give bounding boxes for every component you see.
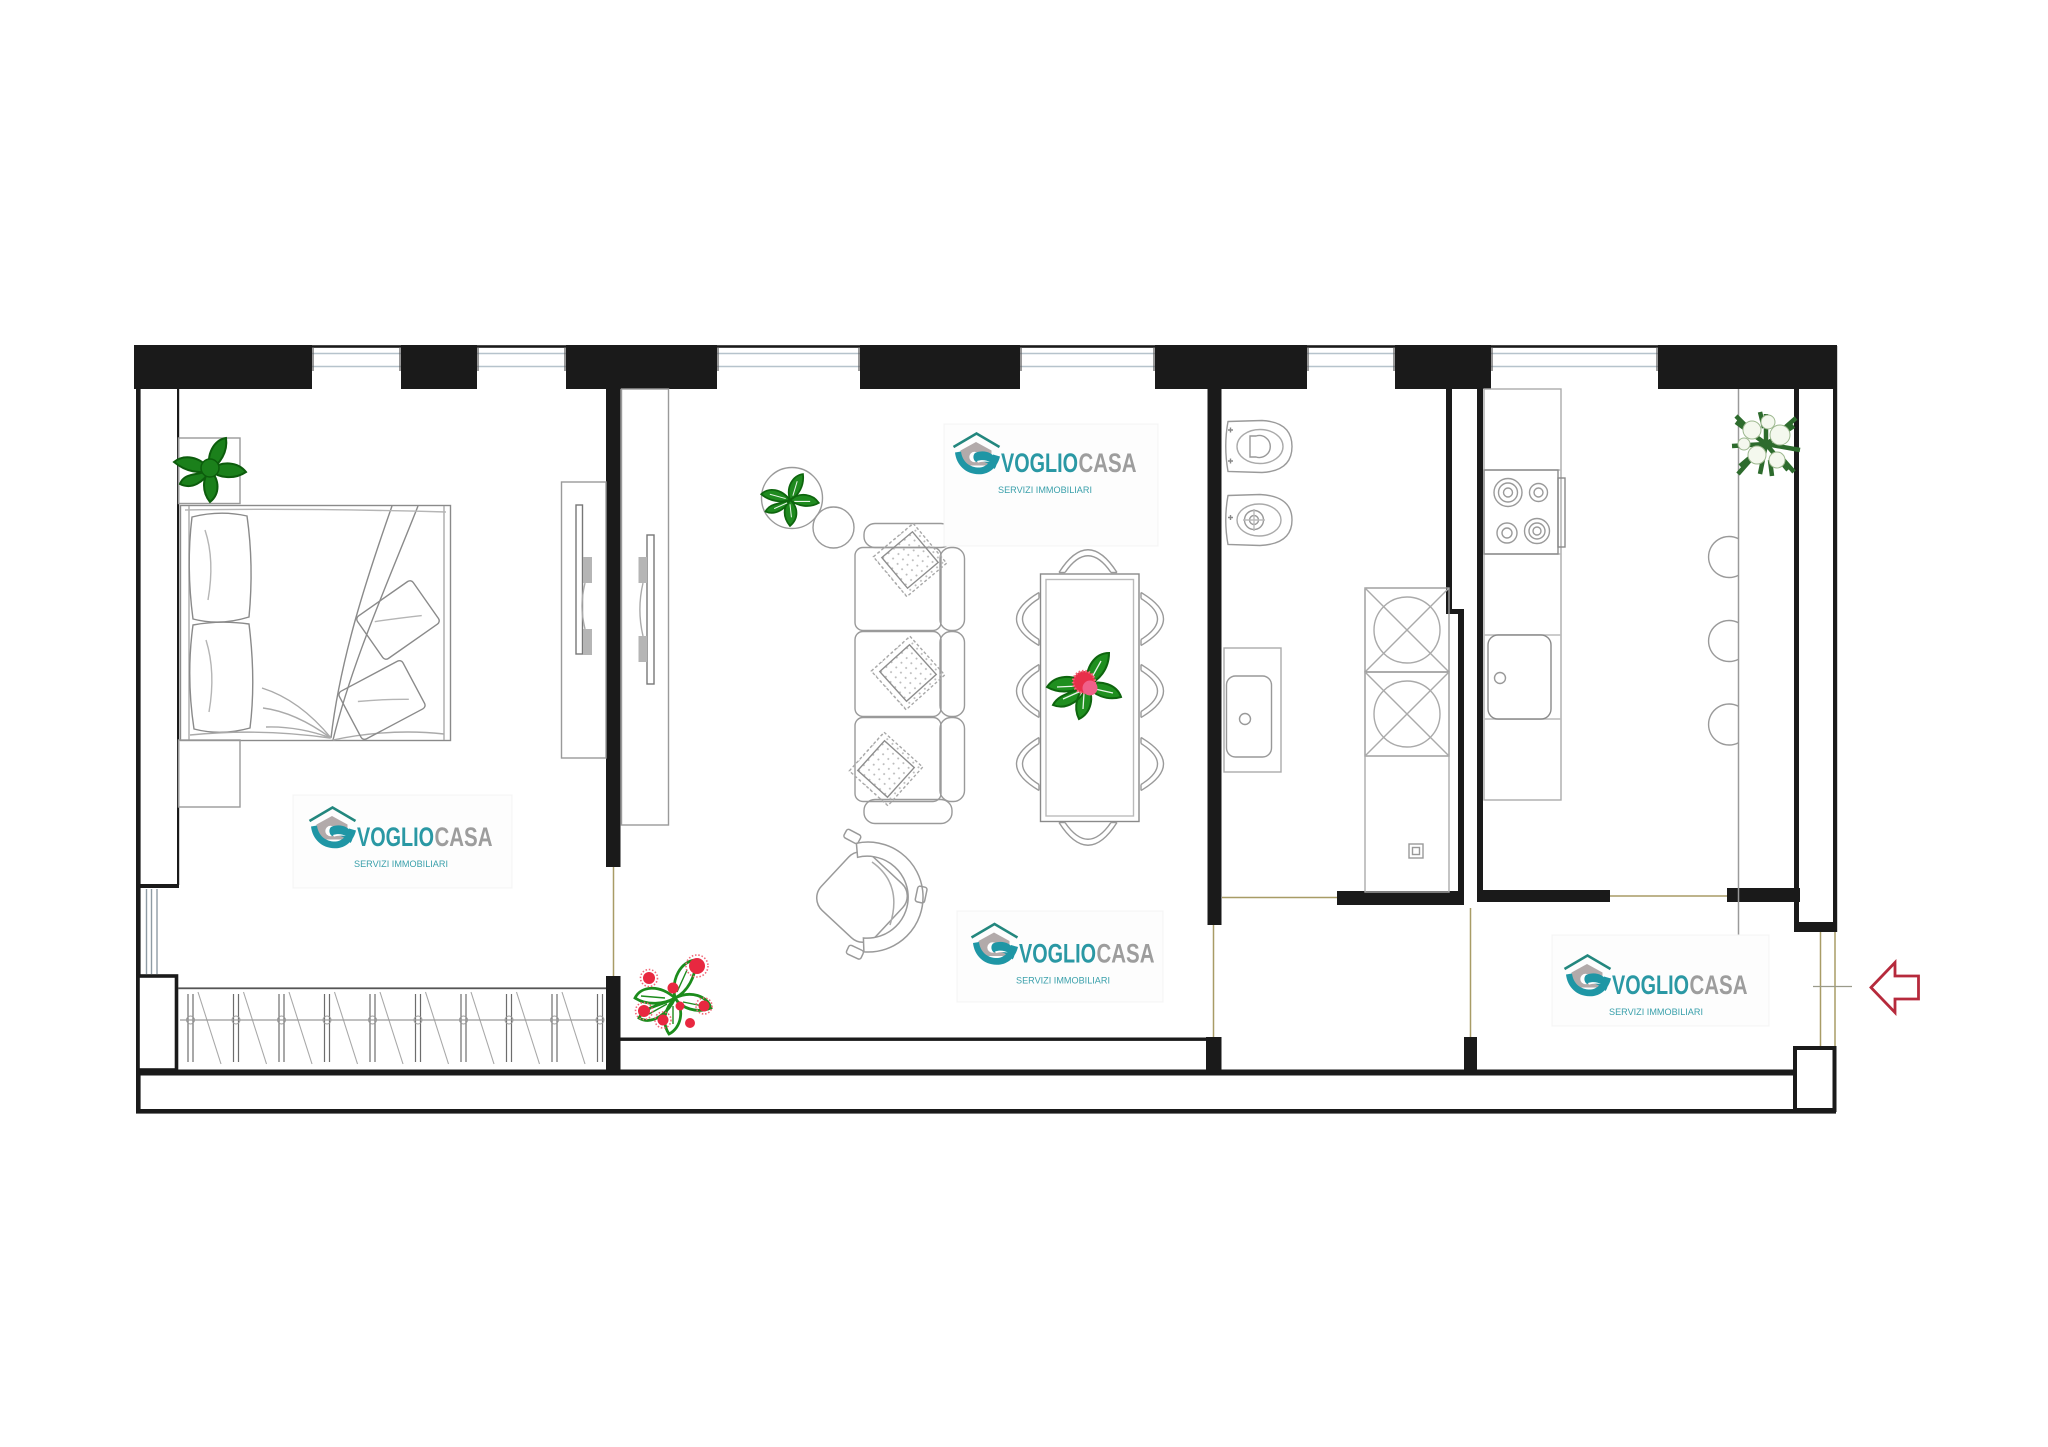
svg-text:CASA: CASA bbox=[435, 822, 493, 852]
svg-text:VOGLIO: VOGLIO bbox=[1019, 939, 1096, 969]
svg-text:CASA: CASA bbox=[1079, 448, 1137, 478]
svg-text:VOGLIO: VOGLIO bbox=[357, 822, 434, 852]
svg-text:VOGLIO: VOGLIO bbox=[1612, 970, 1689, 1000]
svg-text:VOGLIO: VOGLIO bbox=[1001, 448, 1078, 478]
svg-text:CASA: CASA bbox=[1690, 970, 1748, 1000]
svg-text:SERVIZI IMMOBILIARI: SERVIZI IMMOBILIARI bbox=[1609, 1007, 1703, 1018]
svg-text:SERVIZI IMMOBILIARI: SERVIZI IMMOBILIARI bbox=[354, 859, 448, 870]
svg-text:SERVIZI IMMOBILIARI: SERVIZI IMMOBILIARI bbox=[998, 485, 1092, 496]
svg-text:SERVIZI IMMOBILIARI: SERVIZI IMMOBILIARI bbox=[1016, 976, 1110, 987]
svg-text:CASA: CASA bbox=[1097, 939, 1155, 969]
